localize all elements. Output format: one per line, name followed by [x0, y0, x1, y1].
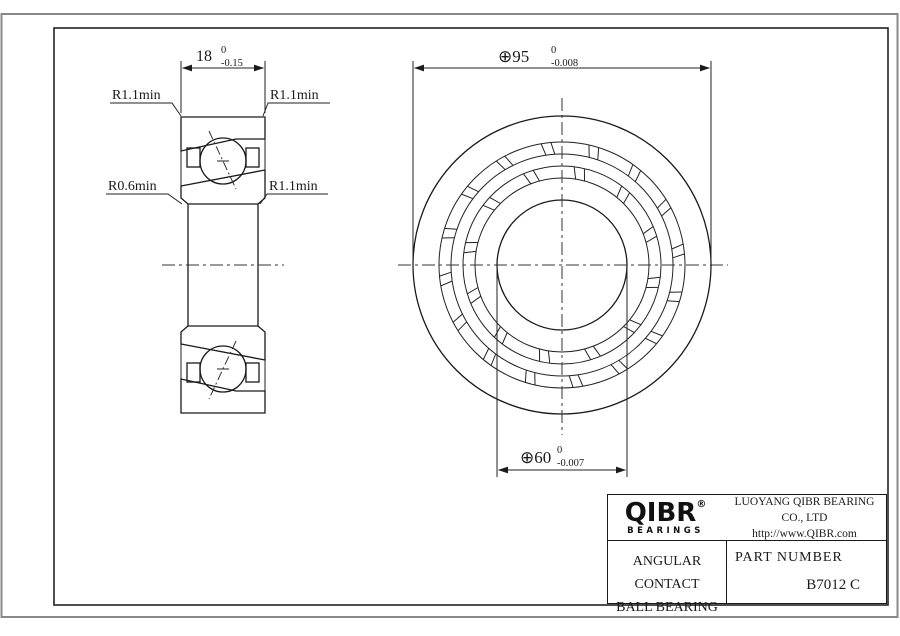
- title-block: QIBR® BEARINGS LUOYANG QIBR BEARING CO.,…: [607, 494, 887, 604]
- radius-label-mid-right: R1.1min: [260, 179, 328, 204]
- logo-text: QIBR: [625, 498, 697, 528]
- od-tol-lower: -0.008: [551, 58, 578, 69]
- product-type-line1: ANGULAR CONTACT: [608, 550, 726, 596]
- radius-label-bottom-left: R0.6min: [106, 179, 182, 204]
- outer-ring-top: [181, 117, 265, 151]
- outer-ring-bottom: [181, 379, 265, 413]
- width-value: 18: [196, 48, 212, 65]
- product-type-line2: BALL BEARING: [608, 596, 726, 619]
- section-view: [162, 117, 284, 413]
- cage-bottom-right: [246, 363, 259, 382]
- company-website: http://www.QIBR.com: [723, 526, 886, 542]
- front-view: [398, 98, 728, 435]
- title-block-header-row: QIBR® BEARINGS LUOYANG QIBR BEARING CO.,…: [608, 495, 886, 541]
- logo-subtext: BEARINGS: [608, 527, 723, 536]
- od-value: ⊕95: [498, 47, 529, 66]
- product-type-cell: ANGULAR CONTACT BALL BEARING: [608, 541, 727, 604]
- cage-top-left: [187, 148, 200, 167]
- inner-ring-bottom: [181, 326, 265, 360]
- svg-text:R1.1min: R1.1min: [112, 88, 161, 103]
- part-number-value: B7012 C: [806, 577, 860, 594]
- width-dimension: 18 0 -0.15: [181, 45, 265, 113]
- width-tol-upper: 0: [221, 45, 226, 56]
- part-number-cell: PART NUMBER B7012 C: [727, 541, 886, 604]
- company-info: LUOYANG QIBR BEARING CO., LTD http://www…: [723, 494, 886, 542]
- svg-text:R1.1min: R1.1min: [269, 179, 318, 194]
- bore-value: ⊕60: [520, 448, 551, 467]
- bore-tol-lower: -0.007: [557, 458, 584, 469]
- cage-bottom-left: [187, 363, 200, 382]
- drawing-sheet: 18 0 -0.15 R1.1min R1.1min R0.6min R1.1m…: [0, 0, 900, 636]
- cage-top-right: [246, 148, 259, 167]
- svg-text:R0.6min: R0.6min: [108, 179, 157, 194]
- svg-text:R1.1min: R1.1min: [270, 88, 319, 103]
- radius-label-top-left: R1.1min: [110, 88, 181, 116]
- logo-wordmark: QIBR®: [608, 500, 723, 526]
- title-block-detail-row: ANGULAR CONTACT BALL BEARING PART NUMBER…: [608, 541, 886, 604]
- company-name: LUOYANG QIBR BEARING CO., LTD: [723, 494, 886, 526]
- inner-ring-top: [181, 170, 265, 204]
- radius-label-top-right: R1.1min: [263, 88, 330, 116]
- bore-tol-upper: 0: [557, 445, 562, 456]
- registered-trademark-symbol: ®: [696, 499, 706, 510]
- company-logo: QIBR® BEARINGS: [608, 500, 723, 536]
- part-number-label: PART NUMBER: [735, 550, 843, 566]
- width-tol-lower: -0.15: [221, 58, 243, 69]
- od-tol-upper: 0: [551, 45, 556, 56]
